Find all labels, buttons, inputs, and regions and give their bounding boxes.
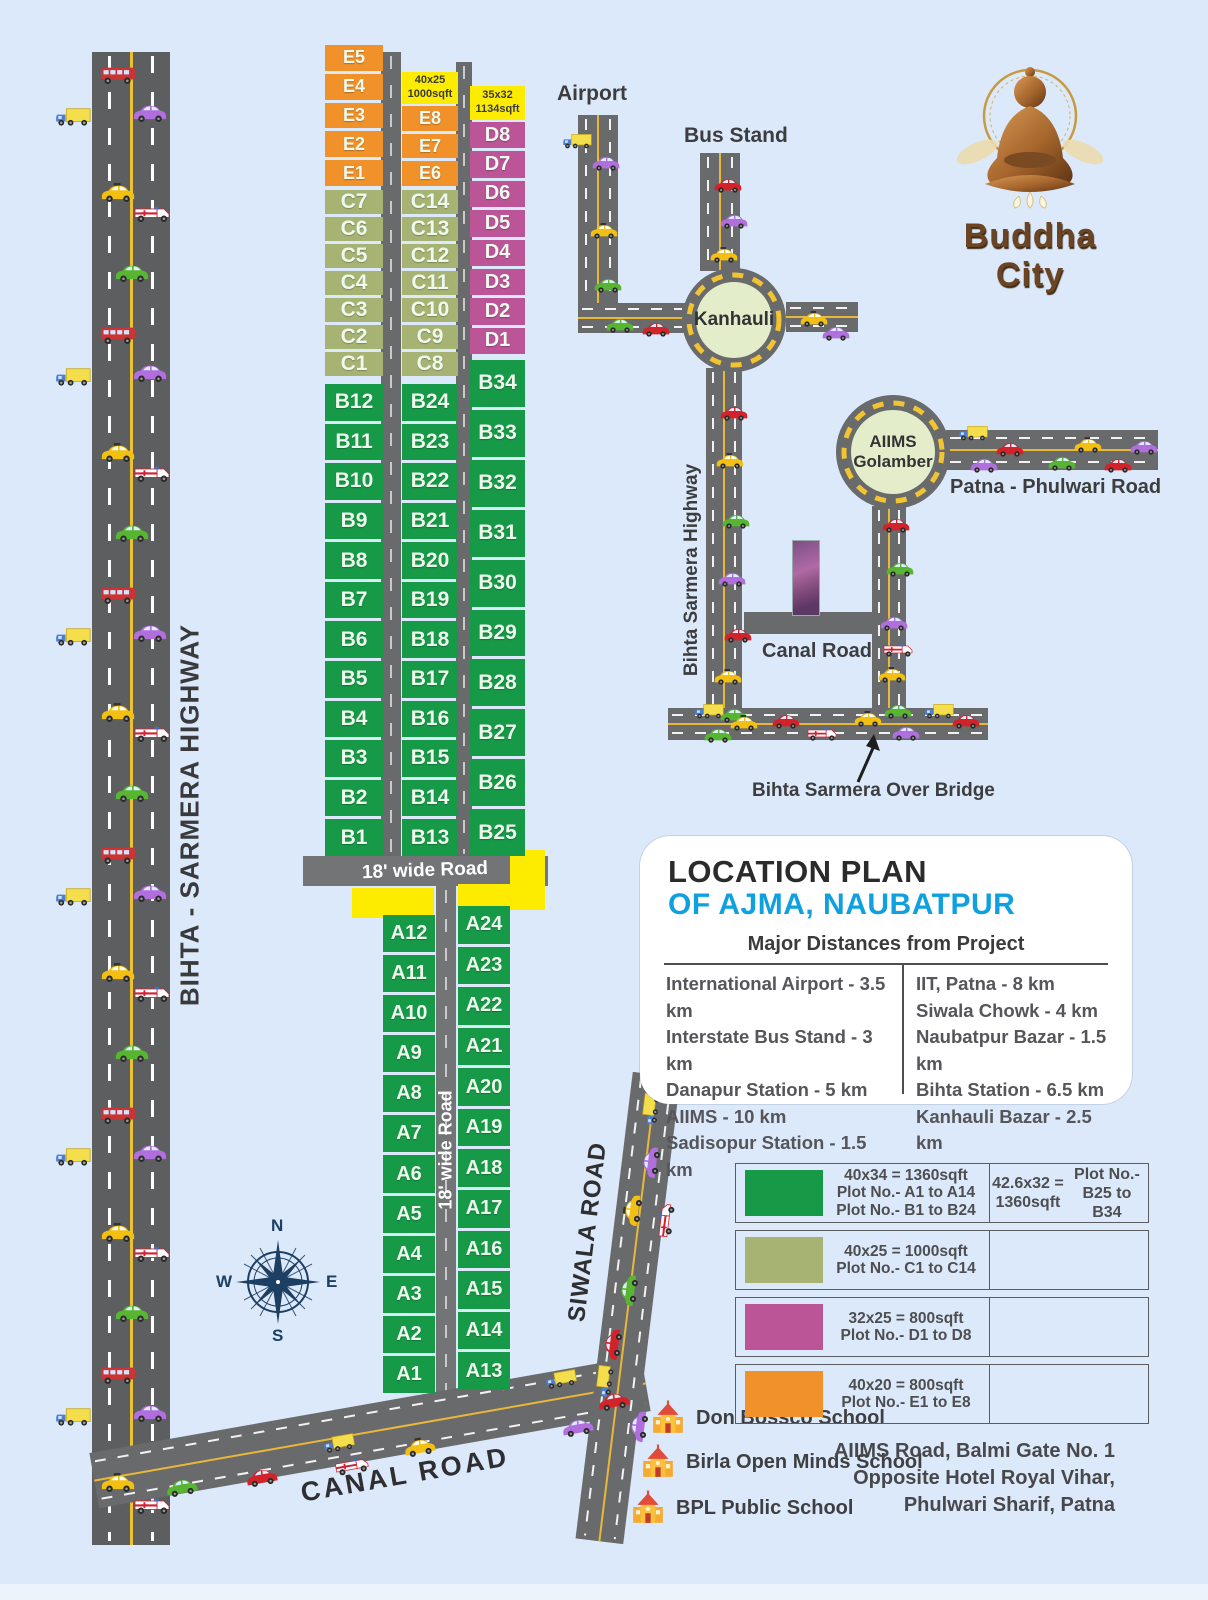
size-tag-mid: 40x25 1000sqft: [402, 72, 458, 104]
car-icon: [721, 512, 752, 532]
legend-right-cell: [989, 1298, 1148, 1356]
taxi-icon: [715, 452, 746, 472]
plot-B20: B20: [402, 542, 458, 579]
car-icon: [243, 1464, 282, 1493]
taxi-icon: [853, 710, 884, 730]
plot-B12: B12: [325, 384, 383, 421]
site-plan-canvas: BIHTA - SARMERA HIGHWAY 18' wide Road 18…: [0, 0, 1208, 1600]
legend-row-1: 40x34 = 1360sqftPlot No.- A1 to A14Plot …: [735, 1163, 1149, 1223]
compass-s: S: [272, 1326, 283, 1346]
plot-column-c-mid: C14C13C12C11C10C9C8: [402, 190, 458, 376]
plot-B34: B34: [470, 360, 525, 407]
address-line: AIIMS Road, Balmi Gate No. 1: [830, 1438, 1115, 1465]
plot-A2: A2: [383, 1316, 435, 1353]
legend-row-3: 32x25 = 800sqftPlot No.- D1 to D8: [735, 1297, 1149, 1357]
address-line: Opposite Hotel Royal Vihar,: [830, 1465, 1115, 1492]
plot-D1: D1: [470, 328, 525, 354]
legend-text: 32x25 = 800sqftPlot No.- D1 to D8: [823, 1310, 989, 1345]
plot-D2: D2: [470, 298, 525, 324]
amb-icon: [883, 640, 914, 660]
compass-n: N: [271, 1216, 283, 1236]
legend-text: 40x34 = 1360sqftPlot No.- A1 to A14Plot …: [823, 1167, 989, 1220]
car-icon: [881, 516, 912, 536]
car-icon: [885, 560, 916, 580]
taxi-icon: [713, 668, 744, 688]
plot-B25: B25: [470, 809, 525, 856]
car-icon: [713, 176, 744, 196]
plot-B15: B15: [402, 740, 458, 777]
taxi-icon: [99, 1472, 136, 1497]
taxi-icon: [99, 1222, 136, 1247]
taxi-icon: [877, 666, 908, 686]
plot-B4: B4: [325, 701, 383, 738]
bus-icon: [99, 584, 136, 609]
distances-table-header: Major Distances from Project: [640, 933, 1132, 956]
over-bridge-photo: [792, 540, 820, 616]
school-icon: [650, 1400, 686, 1436]
brand-text: Buddha City: [925, 217, 1135, 295]
plot-B22: B22: [402, 463, 458, 500]
bus-stand-label: Bus Stand: [684, 124, 788, 148]
school-row: BPL Public School: [630, 1490, 853, 1526]
plot-B2: B2: [325, 780, 383, 817]
plot-A21: A21: [458, 1028, 510, 1066]
plot-B27: B27: [470, 709, 525, 756]
plot-A4: A4: [383, 1236, 435, 1273]
legend-swatch: [745, 1170, 823, 1216]
car-icon: [969, 456, 1000, 476]
plot-A17: A17: [458, 1190, 510, 1228]
plot-B7: B7: [325, 582, 383, 619]
divider: [902, 965, 904, 1094]
buddha-logo: Buddha City: [925, 52, 1135, 252]
plot-D6: D6: [470, 181, 525, 207]
plot-column-b-mid: B24B23B22B21B20B19B18B17B16B15B14B13: [402, 384, 458, 856]
plot-E5: E5: [325, 45, 383, 71]
plot-A12: A12: [383, 915, 435, 952]
plot-D5: D5: [470, 210, 525, 236]
project-address: AIIMS Road, Balmi Gate No. 1Opposite Hot…: [830, 1438, 1115, 1519]
car-icon: [771, 712, 802, 732]
plot-D3: D3: [470, 269, 525, 295]
plot-column-a-right: A24A23A22A21A20A19A18A17A16A15A14A13: [458, 906, 510, 1390]
plot-B17: B17: [402, 661, 458, 698]
plot-A10: A10: [383, 995, 435, 1032]
amb-icon: [807, 724, 838, 744]
taxi-icon: [620, 1192, 647, 1230]
bus-icon: [99, 1364, 136, 1389]
plot-C8: C8: [402, 352, 458, 376]
legend-right-cell: 42.6x32 = 1360sqftPlot No.- B25 to B34: [989, 1164, 1148, 1222]
plot-C1: C1: [325, 352, 383, 376]
plot-B21: B21: [402, 503, 458, 540]
plot-A5: A5: [383, 1196, 435, 1233]
plot-B16: B16: [402, 701, 458, 738]
plot-C12: C12: [402, 244, 458, 268]
canal-road-small-label: Canal Road: [762, 640, 872, 663]
plot-A24: A24: [458, 906, 510, 944]
truck-icon: [55, 366, 92, 391]
distance-item: IIT, Patna - 8 km: [916, 971, 1122, 998]
legend-swatch: [745, 1304, 823, 1350]
plot-C6: C6: [325, 217, 383, 241]
wide-road-h-label: 18' wide Road: [362, 858, 489, 884]
divider: [664, 963, 1108, 965]
plot-B24: B24: [402, 384, 458, 421]
yellow-block: [510, 850, 545, 910]
plot-C9: C9: [402, 325, 458, 349]
plot-C11: C11: [402, 271, 458, 295]
car-icon: [719, 212, 750, 232]
distance-item: Bihta Station - 6.5 km: [916, 1077, 1122, 1104]
plot-E3: E3: [325, 103, 383, 129]
legend-right-cell: [989, 1365, 1148, 1423]
plot-A22: A22: [458, 987, 510, 1025]
yellow-block: [352, 888, 434, 918]
plot-A7: A7: [383, 1115, 435, 1152]
plot-A23: A23: [458, 947, 510, 985]
distance-item: Interstate Bus Stand - 3 km: [666, 1024, 894, 1077]
plot-column-c-left: C7C6C5C4C3C2C1: [325, 190, 383, 376]
plot-B10: B10: [325, 463, 383, 500]
truck-icon: [593, 1363, 619, 1398]
taxi-icon: [589, 222, 620, 242]
plot-B8: B8: [325, 542, 383, 579]
car-icon: [113, 782, 150, 807]
plot-A11: A11: [383, 955, 435, 992]
plot-C13: C13: [402, 217, 458, 241]
distance-item: Danapur Station - 5 km: [666, 1077, 894, 1104]
amb-icon: [133, 1242, 170, 1267]
location-plan-subtitle: OF AJMA, NAUBATPUR: [668, 888, 1015, 922]
distance-item: AIIMS - 10 km: [666, 1104, 894, 1131]
car-icon: [1047, 454, 1078, 474]
car-icon: [879, 614, 910, 634]
plot-A9: A9: [383, 1035, 435, 1072]
plot-road-1: [381, 52, 401, 858]
plot-C4: C4: [325, 271, 383, 295]
truck-icon: [55, 626, 92, 651]
bus-icon: [99, 64, 136, 89]
bottom-strip: [0, 1584, 1208, 1600]
car-icon: [719, 404, 750, 424]
plot-E1: E1: [325, 160, 383, 186]
plot-B28: B28: [470, 659, 525, 706]
plot-B29: B29: [470, 610, 525, 657]
plot-B32: B32: [470, 460, 525, 507]
distance-item: Siwala Chowk - 4 km: [916, 998, 1122, 1025]
plot-column-b-left: B12B11B10B9B8B7B6B5B4B3B2B1: [325, 384, 383, 856]
truck-icon: [55, 886, 92, 911]
compass-w: W: [216, 1272, 232, 1292]
taxi-icon: [1073, 436, 1104, 456]
car-icon: [113, 522, 150, 547]
taxi-icon: [99, 182, 136, 207]
car-icon: [951, 712, 982, 732]
amb-icon: [652, 1202, 679, 1240]
plot-column-d: D8D7D6D5D4D3D2D1: [470, 122, 525, 354]
kanhauli-roundabout: Kanhauli: [682, 268, 786, 372]
legend-row-4: 40x20 = 800sqftPlot No.- E1 to E8: [735, 1364, 1149, 1424]
car-icon: [113, 1042, 150, 1067]
taxi-icon: [99, 702, 136, 727]
plot-D4: D4: [470, 240, 525, 266]
car-icon: [131, 622, 168, 647]
plot-B3: B3: [325, 740, 383, 777]
plot-C5: C5: [325, 244, 383, 268]
truck-icon: [55, 1406, 92, 1431]
school-icon: [630, 1490, 666, 1526]
legend-right-cell: [989, 1231, 1148, 1289]
distances-left-column: International Airport - 3.5 kmInterstate…: [666, 971, 894, 1183]
plot-size-legend: 40x34 = 1360sqftPlot No.- A1 to A14Plot …: [735, 1163, 1149, 1431]
plot-B1: B1: [325, 819, 383, 856]
location-plan-box: LOCATION PLAN OF AJMA, NAUBATPUR Major D…: [640, 836, 1132, 1104]
plot-B23: B23: [402, 424, 458, 461]
size-tag-right: 35x32 1134sqft: [470, 86, 525, 120]
car-icon: [605, 316, 636, 336]
plot-B31: B31: [470, 510, 525, 557]
legend-swatch: [745, 1371, 823, 1417]
legend-swatch: [745, 1237, 823, 1283]
plot-A8: A8: [383, 1075, 435, 1112]
amb-icon: [133, 462, 170, 487]
plot-D8: D8: [470, 122, 525, 148]
distance-item: Kanhauli Bazar - 2.5 km: [916, 1104, 1122, 1157]
location-plan-title: LOCATION PLAN: [668, 854, 927, 890]
truck-icon: [55, 106, 92, 131]
car-icon: [131, 362, 168, 387]
patna-phulwari-label: Patna - Phulwari Road: [950, 476, 1161, 499]
car-icon: [131, 1402, 168, 1427]
plot-C10: C10: [402, 298, 458, 322]
bihta-sarmera-small-label: Bihta Sarmera Highway: [681, 464, 703, 676]
car-icon: [641, 320, 672, 340]
buddha-figure-icon: [925, 52, 1135, 212]
aiims-golamber-center: AIIMS Golamber: [851, 410, 935, 494]
car-icon: [616, 1272, 643, 1310]
car-icon: [113, 1302, 150, 1327]
plot-column-e-left: E5E4E3E2E1: [325, 45, 383, 186]
plot-A14: A14: [458, 1312, 510, 1350]
plot-E6: E6: [402, 161, 458, 186]
plot-B14: B14: [402, 780, 458, 817]
highway-label: BIHTA - SARMERA HIGHWAY: [175, 624, 206, 1006]
car-icon: [723, 626, 754, 646]
plot-B13: B13: [402, 819, 458, 856]
kanhauli-center: Kanhauli: [696, 282, 772, 358]
distance-item: Naubatpur Bazar - 1.5 km: [916, 1024, 1122, 1077]
taxi-icon: [99, 962, 136, 987]
plot-A18: A18: [458, 1149, 510, 1187]
plot-B5: B5: [325, 661, 383, 698]
wide-road-v-label: 18' wide Road: [436, 1090, 457, 1209]
plot-A20: A20: [458, 1068, 510, 1106]
truck-icon: [959, 424, 990, 444]
plot-column-b-right: B34B33B32B31B30B29B28B27B26B25: [470, 360, 525, 856]
lane-line: [151, 56, 154, 1541]
school-icon: [640, 1444, 676, 1480]
truck-icon: [563, 132, 594, 152]
taxi-icon: [709, 246, 740, 266]
plot-C7: C7: [325, 190, 383, 214]
legend-text: 40x20 = 800sqftPlot No.- E1 to E8: [823, 1377, 989, 1412]
aiims-golamber-roundabout: AIIMS Golamber: [836, 395, 950, 509]
plot-D7: D7: [470, 151, 525, 177]
plot-B26: B26: [470, 759, 525, 806]
taxi-icon: [99, 442, 136, 467]
plot-A1: A1: [383, 1356, 435, 1393]
car-icon: [131, 882, 168, 907]
compass-icon: [218, 1222, 338, 1342]
car-icon: [593, 276, 624, 296]
compass-e: E: [326, 1272, 337, 1292]
car-icon: [131, 102, 168, 127]
truck-icon: [55, 1146, 92, 1171]
over-bridge-arrow: [846, 732, 886, 784]
plot-A13: A13: [458, 1352, 510, 1390]
car-icon: [131, 1142, 168, 1167]
car-icon: [883, 702, 914, 722]
car-icon: [600, 1326, 627, 1364]
amb-icon: [133, 722, 170, 747]
car-icon: [163, 1474, 202, 1503]
amb-icon: [133, 982, 170, 1007]
plot-B6: B6: [325, 621, 383, 658]
plot-B19: B19: [402, 582, 458, 619]
bus-icon: [99, 1104, 136, 1129]
distances-right-column: IIT, Patna - 8 kmSiwala Chowk - 4 kmNaub…: [916, 971, 1122, 1157]
plot-B18: B18: [402, 621, 458, 658]
plot-A16: A16: [458, 1231, 510, 1269]
address-line: Phulwari Sharif, Patna: [830, 1492, 1115, 1519]
distance-item: International Airport - 3.5 km: [666, 971, 894, 1024]
bus-icon: [99, 324, 136, 349]
airport-label: Airport: [557, 82, 627, 106]
lane-line: [108, 56, 111, 1541]
legend-row-2: 40x25 = 1000sqftPlot No.- C1 to C14: [735, 1230, 1149, 1290]
plot-C14: C14: [402, 190, 458, 214]
truck-icon: [695, 702, 726, 722]
legend-text: 40x25 = 1000sqftPlot No.- C1 to C14: [823, 1243, 989, 1278]
plot-B33: B33: [470, 410, 525, 457]
bus-icon: [99, 844, 136, 869]
plot-A3: A3: [383, 1276, 435, 1313]
plot-column-a-left: A12A11A10A9A8A7A6A5A4A3A2A1: [383, 915, 435, 1393]
plot-column-e-mid: E8E7E6: [402, 106, 458, 186]
plot-E4: E4: [325, 74, 383, 100]
plot-C2: C2: [325, 325, 383, 349]
car-icon: [638, 1144, 665, 1182]
plot-E2: E2: [325, 131, 383, 157]
plot-A19: A19: [458, 1109, 510, 1147]
car-icon: [1103, 456, 1134, 476]
car-icon: [821, 324, 852, 344]
car-icon: [591, 154, 622, 174]
school-label: BPL Public School: [676, 1497, 853, 1520]
car-icon: [703, 726, 734, 746]
plot-C3: C3: [325, 298, 383, 322]
plot-B11: B11: [325, 424, 383, 461]
amb-icon: [133, 202, 170, 227]
plot-B30: B30: [470, 560, 525, 607]
plot-A15: A15: [458, 1271, 510, 1309]
car-icon: [717, 570, 748, 590]
car-icon: [113, 262, 150, 287]
plot-E7: E7: [402, 134, 458, 159]
plot-A6: A6: [383, 1155, 435, 1192]
plot-E8: E8: [402, 106, 458, 131]
car-icon: [1129, 438, 1160, 458]
car-icon: [891, 724, 922, 744]
plot-B9: B9: [325, 503, 383, 540]
compass-rose: N S E W: [218, 1222, 338, 1342]
